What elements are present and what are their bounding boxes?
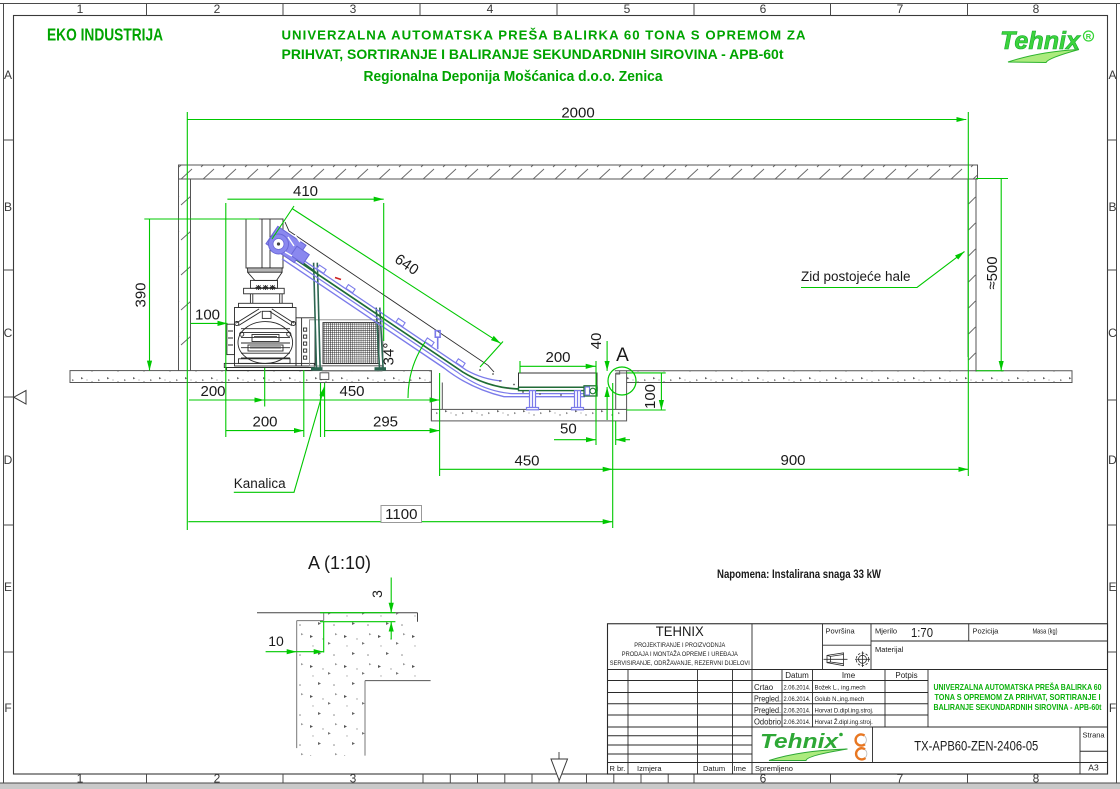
svg-text:8: 8 [1033, 2, 1040, 16]
svg-text:40: 40 [588, 333, 605, 350]
svg-text:900: 900 [780, 452, 805, 469]
svg-text:10: 10 [268, 633, 284, 649]
svg-text:3: 3 [350, 772, 357, 786]
svg-text:Pregled.: Pregled. [754, 706, 781, 715]
svg-text:450: 450 [514, 453, 539, 470]
svg-text:A3: A3 [1088, 763, 1099, 773]
svg-text:PROJEKTIRANJE I PROIZVODNJA: PROJEKTIRANJE I PROIZVODNJA [634, 642, 726, 649]
svg-text:TEHNIX: TEHNIX [656, 624, 704, 639]
svg-text:2000: 2000 [561, 104, 594, 121]
svg-text:UNIVERZALNA AUTOMATSKA PREŠA B: UNIVERZALNA AUTOMATSKA PREŠA BALIRKA 60 … [282, 28, 806, 43]
svg-text:1100: 1100 [385, 506, 417, 523]
svg-text:Mjerilo: Mjerilo [875, 627, 897, 636]
svg-text:5: 5 [624, 2, 631, 16]
svg-text:A (1:10): A (1:10) [308, 553, 371, 573]
svg-text:Božek L., ing.mech: Božek L., ing.mech [815, 685, 866, 691]
svg-text:2: 2 [214, 2, 221, 16]
svg-text:295: 295 [373, 414, 398, 431]
svg-text:1:70: 1:70 [911, 626, 933, 640]
svg-text:Datum: Datum [785, 671, 809, 680]
svg-text:TX-APB60-ZEN-2406-05: TX-APB60-ZEN-2406-05 [914, 738, 1038, 754]
svg-text:Strana: Strana [1083, 731, 1106, 740]
svg-text:≈500: ≈500 [984, 256, 1001, 289]
svg-text:Površina: Površina [826, 627, 856, 636]
svg-text:Ime: Ime [842, 671, 856, 680]
svg-text:SERVISIRANJE, ODRŽAVANJE, REZE: SERVISIRANJE, ODRŽAVANJE, REZERVNI DIJEL… [610, 658, 750, 667]
svg-text:TONA S OPREMOM ZA PRIHVAT, SOR: TONA S OPREMOM ZA PRIHVAT, SORTIRANJE I [935, 693, 1101, 702]
svg-text:E: E [1108, 580, 1116, 594]
svg-text:100: 100 [195, 307, 220, 324]
svg-text:1: 1 [77, 2, 84, 16]
svg-text:100: 100 [642, 384, 659, 409]
svg-text:A: A [1108, 68, 1116, 82]
svg-text:Ime: Ime [734, 764, 747, 773]
svg-text:Izmjera: Izmjera [637, 764, 662, 773]
svg-text:Odobrio: Odobrio [754, 718, 782, 727]
svg-text:Zid postojeće hale: Zid postojeće hale [801, 269, 911, 284]
svg-text:A: A [616, 345, 629, 366]
svg-text:Spremljeno: Spremljeno [755, 764, 793, 773]
svg-text:Horvat D.dipl.ing.stroj.: Horvat D.dipl.ing.stroj. [815, 708, 874, 714]
svg-text:2.06.2014.: 2.06.2014. [784, 685, 811, 691]
svg-text:3: 3 [350, 2, 357, 16]
svg-text:Pregled.: Pregled. [754, 695, 781, 704]
svg-text:B: B [4, 200, 12, 214]
svg-text:EKO INDUSTRIJA: EKO INDUSTRIJA [47, 25, 163, 45]
svg-text:34°: 34° [381, 343, 398, 366]
svg-text:D: D [4, 453, 13, 467]
svg-text:200: 200 [200, 383, 225, 400]
svg-text:F: F [1109, 701, 1116, 715]
svg-text:4: 4 [487, 2, 494, 16]
svg-text:390: 390 [133, 282, 150, 307]
svg-text:Pozicija: Pozicija [973, 627, 1000, 636]
svg-text:E: E [4, 580, 12, 594]
svg-text:A: A [4, 68, 12, 82]
svg-text:R: R [1086, 32, 1092, 41]
svg-text:D: D [1108, 453, 1117, 467]
svg-text:Crtao: Crtao [754, 683, 774, 692]
svg-text:1: 1 [77, 772, 84, 786]
svg-text:450: 450 [339, 383, 364, 400]
svg-text:PRIHVAT, SORTIRANJE I BALIRANJ: PRIHVAT, SORTIRANJE I BALIRANJE SEKUNDAR… [282, 47, 784, 62]
svg-text:Regionalna Deponija Mošćanica: Regionalna Deponija Mošćanica d.o.o. Zen… [364, 69, 664, 85]
svg-text:2.06.2014.: 2.06.2014. [784, 697, 811, 703]
svg-text:Datum: Datum [703, 764, 725, 773]
svg-text:F: F [4, 701, 11, 715]
svg-text:2: 2 [214, 772, 221, 786]
svg-text:Horvat Ž.dipl.ing.stroj.: Horvat Ž.dipl.ing.stroj. [815, 718, 874, 726]
svg-text:C: C [1108, 326, 1117, 340]
svg-text:R br.: R br. [610, 764, 626, 773]
svg-text:Potpis: Potpis [895, 671, 917, 680]
svg-text:Masa (kg): Masa (kg) [1033, 627, 1058, 636]
svg-text:Materijal: Materijal [875, 645, 904, 654]
svg-text:Napomena: Instalirana snaga 33: Napomena: Instalirana snaga 33 kW [717, 567, 882, 581]
svg-text:Kanalica: Kanalica [234, 476, 286, 491]
svg-text:2.06.2014.: 2.06.2014. [784, 708, 811, 714]
svg-text:50: 50 [560, 421, 577, 438]
svg-text:200: 200 [252, 414, 277, 431]
svg-text:PRODAJA I MONTAŽA OPREME I URE: PRODAJA I MONTAŽA OPREME I UREĐAJA [622, 649, 739, 658]
svg-text:7: 7 [897, 2, 904, 16]
svg-text:UNIVERZALNA AUTOMATSKA PREŠA B: UNIVERZALNA AUTOMATSKA PREŠA BALIRKA 60 [934, 681, 1102, 692]
svg-text:3: 3 [369, 590, 385, 598]
svg-text:C: C [4, 326, 13, 340]
svg-text:Golub N.,ing.mech: Golub N.,ing.mech [815, 697, 865, 703]
svg-text:BALIRANJE SEKUNDARDNIH SIROVIN: BALIRANJE SEKUNDARDNIH SIROVINA - APB-60… [934, 703, 1102, 712]
svg-text:200: 200 [545, 349, 570, 366]
svg-text:410: 410 [293, 183, 318, 200]
svg-text:B: B [1108, 200, 1116, 214]
svg-text:2.06.2014.: 2.06.2014. [784, 720, 811, 726]
svg-text:6: 6 [760, 2, 767, 16]
